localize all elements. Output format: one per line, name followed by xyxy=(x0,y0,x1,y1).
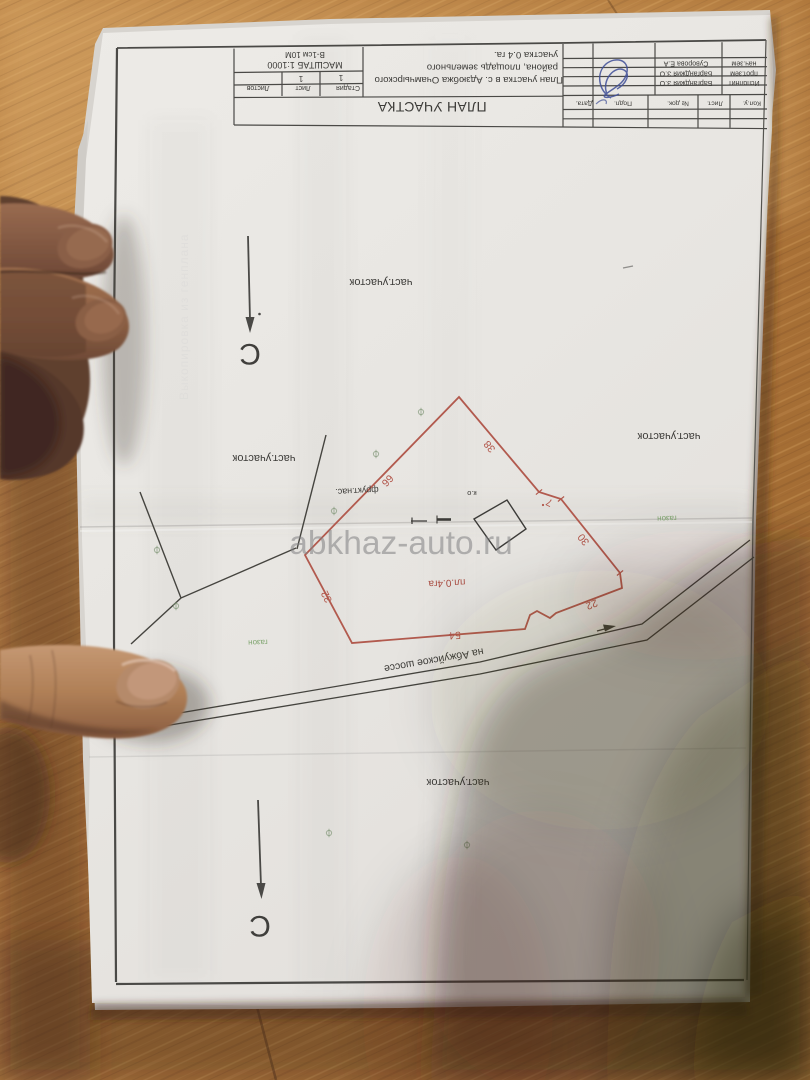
svg-text:Листов: Листов xyxy=(246,84,269,91)
svg-text:С: С xyxy=(239,337,261,370)
svg-text:част.участок: част.участок xyxy=(349,276,412,288)
svg-text:План участка в с. Адзюбжа Очам: План участка в с. Адзюбжа Очамчырского xyxy=(375,74,564,85)
svg-text:Стадия: Стадия xyxy=(336,84,360,91)
svg-text:1: 1 xyxy=(338,73,343,82)
svg-text:Барганджия З.О: Барганджия З.О xyxy=(659,79,712,86)
svg-text:газон: газон xyxy=(248,638,268,648)
svg-text:нач.зем: нач.зем xyxy=(731,60,756,67)
svg-text:района, площадь земельного: района, площадь земельного xyxy=(427,62,558,73)
svg-text:част.участок: част.участок xyxy=(232,452,295,464)
svg-text:Лист: Лист xyxy=(295,84,311,91)
svg-text:газон: газон xyxy=(657,514,677,524)
svg-text:ПЛАН УЧАСТКА: ПЛАН УЧАСТКА xyxy=(377,99,486,115)
svg-text:пл.0.4га: пл.0.4га xyxy=(428,576,466,589)
svg-text:Суворова Е.А: Суворова Е.А xyxy=(663,60,708,67)
svg-text:част.участок: част.участок xyxy=(637,430,700,442)
svg-text:С: С xyxy=(249,909,271,942)
svg-text:В-1см 10М: В-1см 10М xyxy=(285,50,325,59)
svg-text:Кол.у.: Кол.у. xyxy=(743,100,761,107)
svg-text:Выкопировка из генплана: Выкопировка из генплана xyxy=(177,233,191,400)
svg-text:к.о: к.о xyxy=(467,489,477,498)
svg-text:1: 1 xyxy=(298,74,303,83)
svg-text:Барганджия З.О: Барганджия З.О xyxy=(659,70,712,77)
svg-text:Исполнит: Исполнит xyxy=(728,79,760,86)
svg-text:Лист.: Лист. xyxy=(707,100,723,107)
svg-text:№ док.: № док. xyxy=(667,100,689,107)
svg-text:участка 0.4 га.: участка 0.4 га. xyxy=(494,49,558,60)
svg-text:abkhaz-auto.ru: abkhaz-auto.ru xyxy=(289,525,512,562)
svg-text:Дата.: Дата. xyxy=(575,100,592,107)
svg-text:МАСШТАБ 1:1000: МАСШТАБ 1:1000 xyxy=(267,60,342,70)
svg-text:прот.зем: прот.зем xyxy=(730,70,758,77)
svg-text:Подп.: Подп. xyxy=(614,100,632,107)
